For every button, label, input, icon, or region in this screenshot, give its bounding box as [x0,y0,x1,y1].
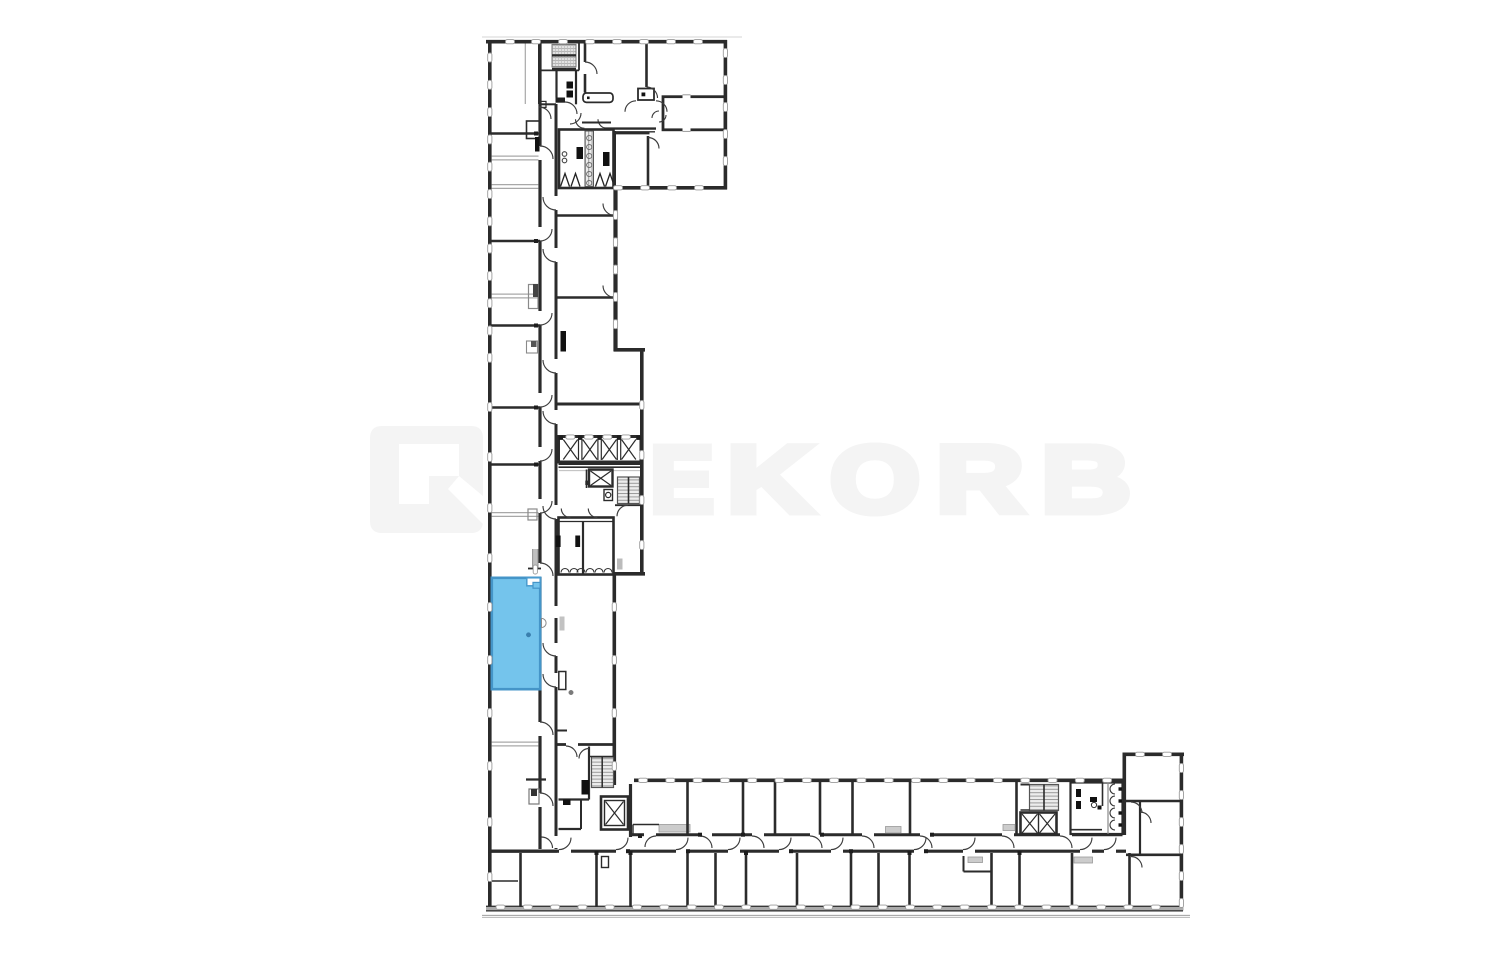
svg-text:O: O [830,427,920,533]
svg-text:K: K [727,427,813,533]
svg-text:R: R [936,427,1024,533]
svg-text:B: B [1041,427,1131,533]
svg-text:E: E [650,427,714,533]
